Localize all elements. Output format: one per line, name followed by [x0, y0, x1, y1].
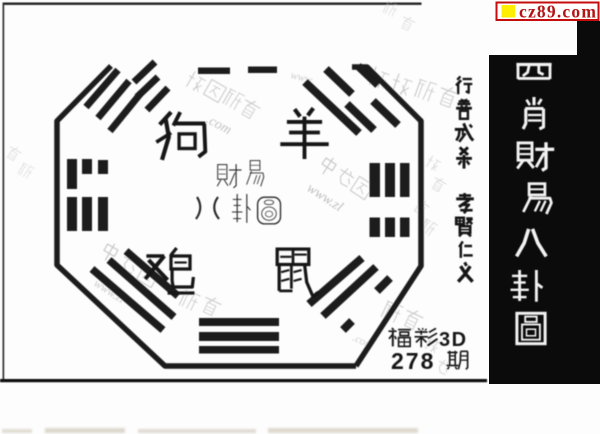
svg-text:3D: 3D	[439, 329, 468, 351]
svg-text:cz89.com: cz89.com	[519, 2, 597, 22]
svg-text:278: 278	[391, 348, 435, 374]
